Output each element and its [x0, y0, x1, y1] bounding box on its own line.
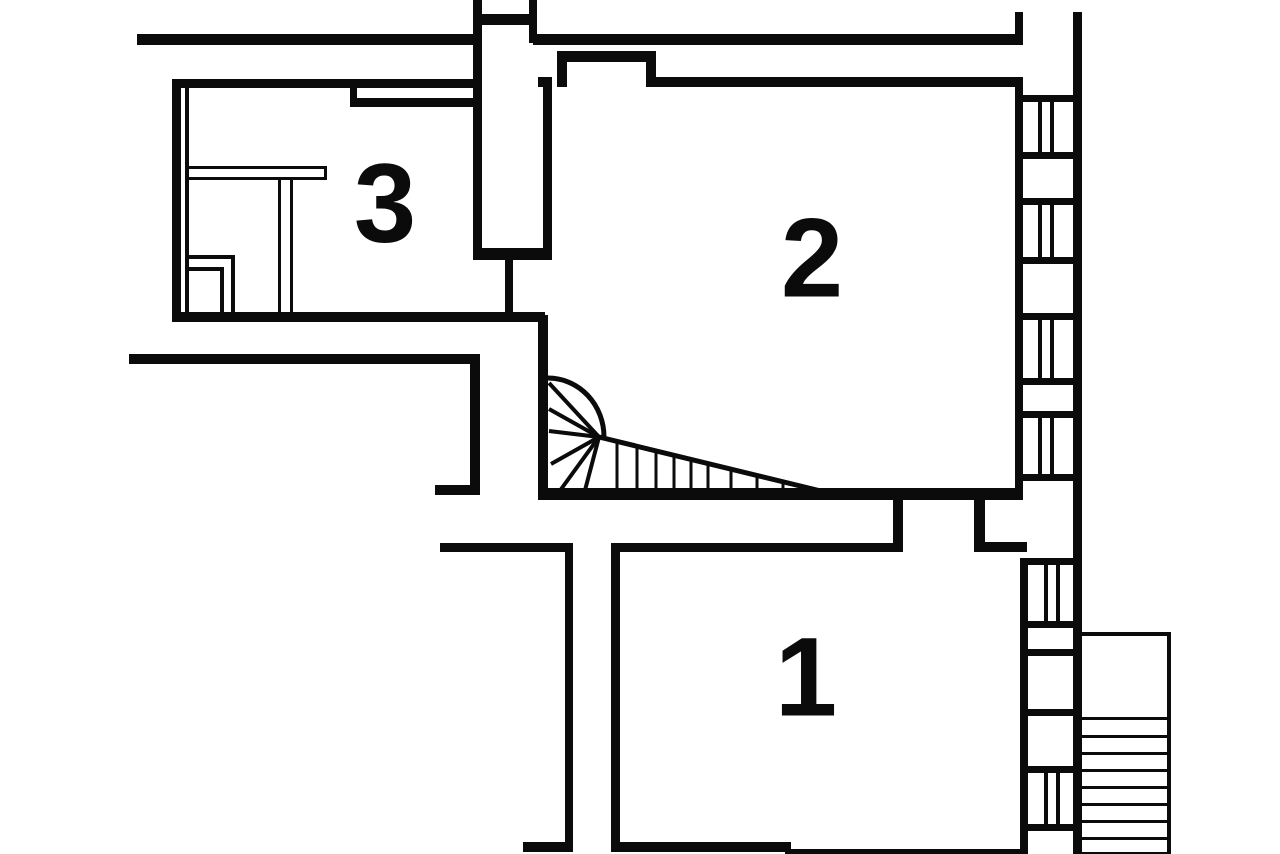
exterior-top-walls — [137, 0, 1023, 260]
room-1-label: 1 — [775, 622, 837, 734]
spiral-staircase — [548, 378, 825, 497]
window-band — [1015, 12, 1082, 854]
exterior-staircase — [1082, 632, 1171, 854]
floorplan-drawing — [0, 0, 1280, 854]
corridor-shaft-walls — [473, 77, 552, 315]
floor-plan: 1 2 3 — [0, 0, 1280, 854]
room-2-label: 2 — [781, 203, 843, 315]
room-3-furniture — [188, 166, 327, 312]
passage-walls — [440, 500, 1027, 552]
left-annex-walls — [129, 354, 480, 495]
stair-enclosure-walls — [538, 315, 1022, 500]
walls — [129, 0, 1171, 854]
room-3-label: 3 — [354, 148, 416, 260]
